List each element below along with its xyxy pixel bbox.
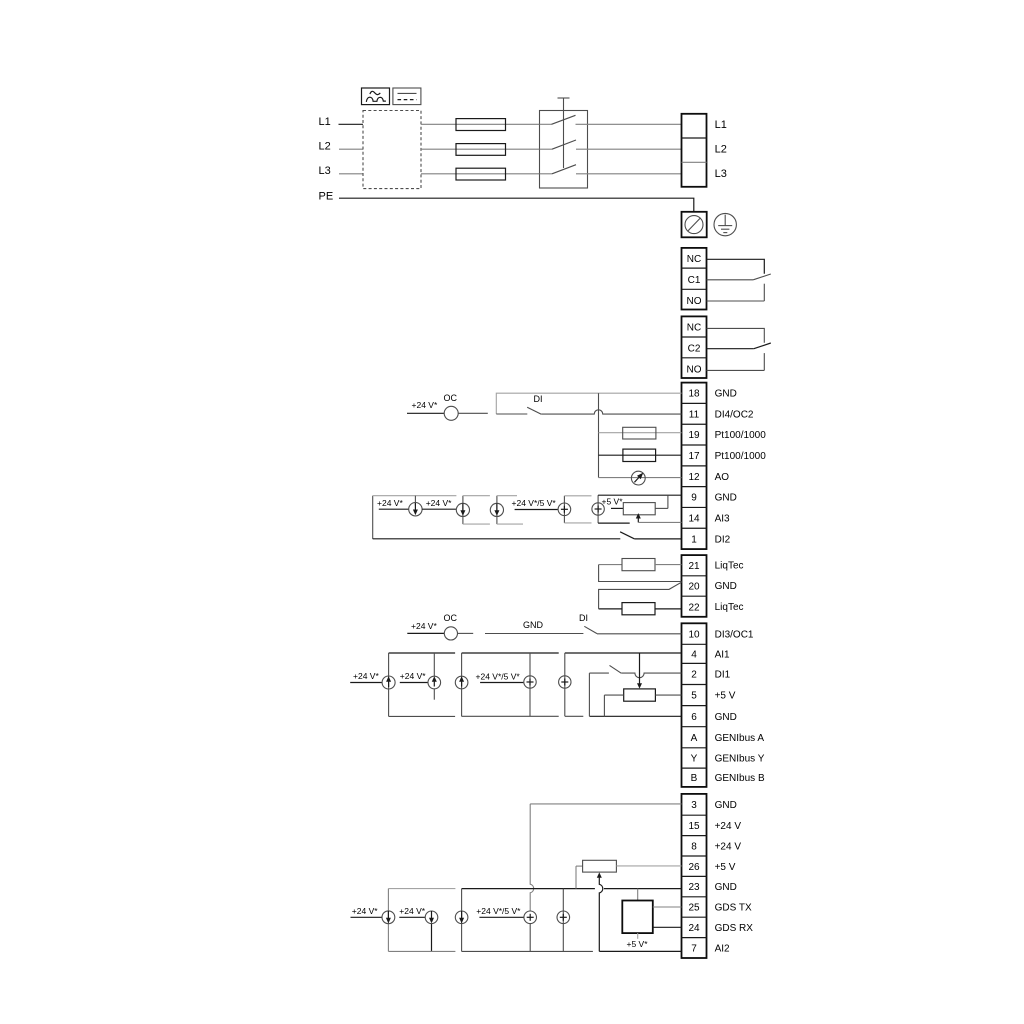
svg-text:9: 9 (691, 493, 697, 504)
svg-text:DI: DI (534, 394, 543, 404)
svg-text:10: 10 (688, 629, 700, 640)
svg-text:C1: C1 (688, 275, 701, 286)
svg-text:5: 5 (691, 691, 697, 702)
svg-text:+5 V*: +5 V* (602, 497, 624, 507)
svg-text:NO: NO (687, 364, 702, 375)
svg-text:GND: GND (715, 389, 737, 400)
svg-text:+24 V*: +24 V* (353, 671, 379, 681)
svg-text:AI1: AI1 (715, 649, 730, 660)
svg-text:L1: L1 (319, 116, 331, 128)
svg-text:OC: OC (444, 613, 458, 623)
svg-text:+24 V*: +24 V* (426, 498, 452, 508)
svg-text:GND: GND (715, 712, 737, 723)
svg-text:+24 V*: +24 V* (411, 621, 437, 631)
svg-text:NC: NC (687, 322, 701, 333)
svg-text:3: 3 (691, 800, 697, 811)
svg-text:1: 1 (691, 534, 697, 545)
svg-text:GND: GND (715, 493, 737, 504)
svg-text:+24 V*/5 V*: +24 V*/5 V* (512, 498, 557, 508)
svg-text:L3: L3 (319, 165, 331, 177)
svg-text:Y: Y (691, 754, 698, 765)
svg-text:GND: GND (715, 882, 737, 893)
svg-text:AI3: AI3 (715, 513, 730, 524)
svg-text:PE: PE (319, 190, 334, 202)
svg-text:GENIbus Y: GENIbus Y (715, 754, 765, 765)
svg-text:DI4/OC2: DI4/OC2 (715, 409, 754, 420)
svg-text:11: 11 (689, 409, 700, 420)
svg-text:15: 15 (688, 821, 700, 832)
svg-text:+5 V: +5 V (715, 862, 736, 873)
svg-text:7: 7 (691, 943, 697, 954)
svg-text:NO: NO (687, 296, 702, 307)
svg-text:GENIbus B: GENIbus B (715, 773, 765, 784)
svg-text:17: 17 (688, 451, 700, 462)
svg-text:2: 2 (691, 670, 697, 681)
svg-text:Pt100/1000: Pt100/1000 (715, 451, 767, 462)
svg-text:AO: AO (715, 472, 730, 483)
svg-text:18: 18 (688, 389, 700, 400)
svg-text:+24 V*: +24 V* (352, 906, 378, 916)
svg-text:L2: L2 (319, 141, 331, 153)
svg-text:L2: L2 (715, 144, 727, 156)
svg-text:21: 21 (688, 561, 700, 572)
svg-text:14: 14 (688, 513, 700, 524)
svg-text:+24 V: +24 V (715, 821, 742, 832)
svg-text:+5 V: +5 V (715, 691, 736, 702)
svg-text:LiqTec: LiqTec (715, 602, 744, 613)
svg-text:AI2: AI2 (715, 943, 730, 954)
svg-text:GND: GND (523, 620, 544, 630)
svg-text:19: 19 (688, 430, 700, 441)
svg-text:8: 8 (691, 841, 697, 852)
svg-text:+24 V*: +24 V* (399, 906, 425, 916)
svg-text:4: 4 (691, 649, 697, 660)
svg-text:25: 25 (688, 903, 700, 914)
svg-text:C2: C2 (688, 344, 701, 355)
svg-text:GND: GND (715, 581, 737, 592)
svg-text:23: 23 (688, 882, 700, 893)
svg-text:24: 24 (688, 923, 700, 934)
svg-text:GDS RX: GDS RX (715, 923, 754, 934)
svg-text:20: 20 (688, 582, 700, 593)
svg-text:6: 6 (691, 712, 697, 723)
svg-text:GENIbus A: GENIbus A (715, 733, 765, 744)
svg-text:22: 22 (688, 602, 700, 613)
svg-text:DI: DI (579, 613, 588, 623)
svg-text:+24 V*: +24 V* (412, 400, 438, 410)
svg-text:B: B (691, 773, 698, 784)
svg-text:DI3/OC1: DI3/OC1 (715, 629, 754, 640)
svg-text:+24 V*: +24 V* (400, 671, 426, 681)
svg-text:GND: GND (715, 800, 737, 811)
svg-text:L3: L3 (715, 168, 727, 180)
svg-text:+24 V*/5 V*: +24 V*/5 V* (476, 672, 521, 682)
svg-text:+24 V*: +24 V* (377, 498, 403, 508)
svg-text:LiqTec: LiqTec (715, 561, 744, 572)
svg-text:+5 V*: +5 V* (627, 939, 649, 949)
svg-text:DI1: DI1 (715, 670, 731, 681)
svg-text:26: 26 (688, 862, 700, 873)
svg-text:+24 V: +24 V (715, 841, 742, 852)
svg-text:A: A (691, 733, 698, 744)
svg-text:L1: L1 (715, 119, 727, 131)
svg-text:+24 V*/5 V*: +24 V*/5 V* (476, 906, 521, 916)
svg-text:DI2: DI2 (715, 534, 731, 545)
svg-text:OC: OC (444, 393, 458, 403)
svg-text:NC: NC (687, 254, 701, 265)
svg-text:GDS TX: GDS TX (715, 903, 752, 914)
svg-text:12: 12 (688, 472, 700, 483)
svg-text:Pt100/1000: Pt100/1000 (715, 430, 767, 441)
